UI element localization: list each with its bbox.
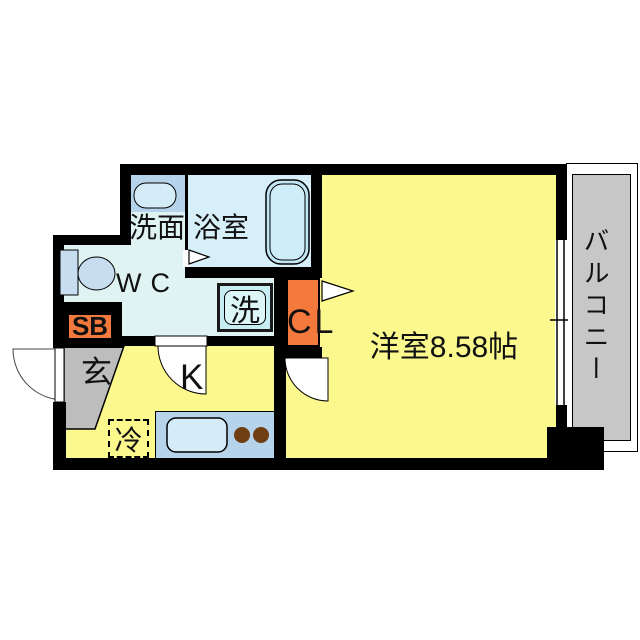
stove-burner-icon (234, 427, 250, 443)
entrance-label: 玄 (81, 357, 112, 388)
washroom-label: 洗面 (129, 214, 185, 242)
bathroom-door-triangle (189, 250, 209, 264)
toilet-bowl-icon (78, 257, 115, 290)
toilet-tank-icon (60, 250, 78, 295)
kitchen-door-opening (155, 336, 207, 346)
kitchen-sink-icon (167, 418, 227, 452)
balcony-label: バルコニー (582, 227, 608, 407)
bathtub-inner (270, 184, 305, 260)
kitchen-label: K (180, 360, 203, 395)
washroom-sink-icon (134, 183, 176, 208)
bathroom-label: 浴室 (193, 214, 249, 242)
floor-plan: SB 冷 洗 (0, 0, 640, 640)
closet-label: CL (287, 305, 336, 339)
closet-door-triangle (322, 281, 353, 301)
western-room-label: 洋室8.58帖 (330, 333, 558, 363)
stove-burner-icon (253, 427, 269, 443)
wc-label: WC (116, 270, 179, 297)
entrance-door-leaf (55, 348, 64, 402)
western-room-door-arc (285, 358, 328, 401)
